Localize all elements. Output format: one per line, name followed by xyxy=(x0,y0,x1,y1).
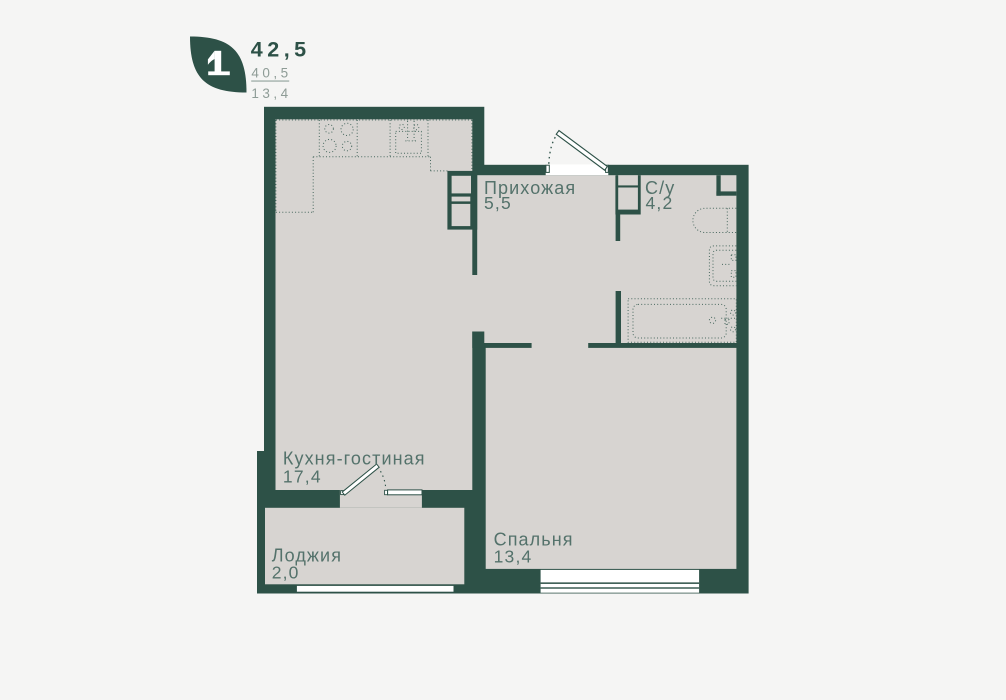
svg-text:13,4: 13,4 xyxy=(494,546,533,566)
svg-text:4,2: 4,2 xyxy=(646,193,674,213)
svg-text:40,5: 40,5 xyxy=(251,65,291,80)
svg-text:42,5: 42,5 xyxy=(251,38,311,62)
svg-text:17,4: 17,4 xyxy=(283,466,322,486)
svg-text:5,5: 5,5 xyxy=(484,193,512,213)
svg-text:13,4: 13,4 xyxy=(251,86,291,101)
svg-text:2,0: 2,0 xyxy=(272,562,300,582)
